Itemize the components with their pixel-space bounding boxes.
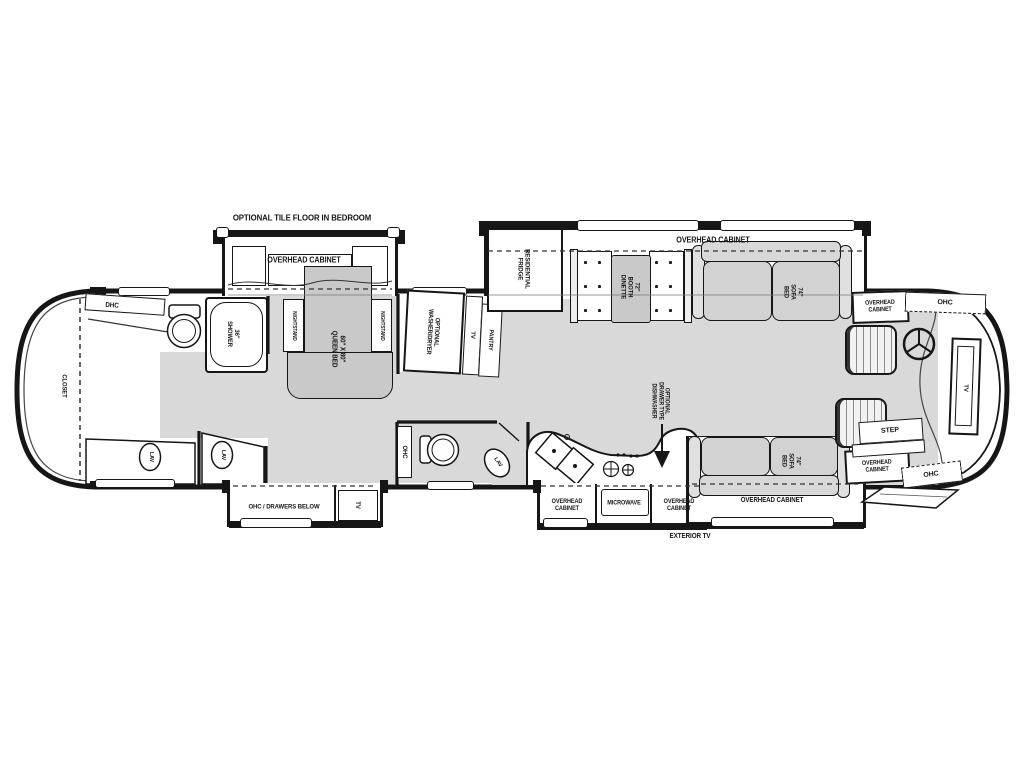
bedroom-slide-edge (222, 230, 398, 237)
kitchen-cabinet-right-label: OVERHEAD CABINET (664, 498, 695, 512)
fridge-label: RESIDENTIAL FRIDGE (516, 249, 531, 289)
dinette-bench-left (577, 251, 612, 321)
vanity-lav-label: LAV (219, 450, 225, 460)
window-rear-top (118, 287, 170, 296)
window-dinette-slide (577, 220, 699, 231)
front-top-cabinet-label: OVERHEAD CABINET (865, 300, 895, 315)
bedroom-slide-nub-right (387, 227, 400, 238)
window-sofa-slide-bottom (711, 517, 834, 527)
front-bottom-cabinet-label: OVERHEAD CABINET (862, 459, 892, 474)
rear-dhc-label: DHC (105, 302, 119, 310)
pantry-label: PANTRY (486, 329, 494, 350)
microwave-label: MICROWAVE (607, 499, 641, 506)
bedroom-slide-divider (334, 485, 336, 527)
slide-corner-post-7 (533, 480, 541, 493)
front-tv-label: TV (962, 384, 969, 392)
kitchen-cabinet-left-label: OVERHEAD CABINET (552, 498, 583, 512)
sofa-bottom-label: 74" SOFA BED (780, 453, 801, 469)
plan-title: OPTIONAL TILE FLOOR IN BEDROOM (233, 215, 371, 224)
cooktop-knob-2 (622, 453, 625, 456)
slide-corner-post-5 (222, 480, 230, 493)
queen-bed-label: 60" X 80" QUEEN BED (330, 331, 345, 368)
sink-drain-2 (573, 464, 577, 468)
midbath-ohc-label: OHC (401, 445, 407, 458)
front-top-ohc-label: OHC (937, 299, 953, 307)
bedroom-slide-cabinet-label: OVERHEAD CABINET (267, 257, 340, 266)
dishwasher-label: OPTIONAL DRAWER TYPE DISHWASHER (650, 382, 669, 420)
cooktop-knob-1 (616, 453, 619, 456)
sofa-top-label: 74" SOFA BED (782, 284, 803, 300)
sofa-bottom-back (699, 475, 839, 496)
bedroom-slide-nub-left (216, 227, 229, 238)
step-label: STEP (881, 427, 899, 436)
window-bath-bottom (95, 479, 175, 488)
exterior-tv-label: EXTERIOR TV (669, 533, 710, 541)
driver-seat (845, 325, 897, 375)
window-kitchen-slide (543, 518, 588, 528)
cooktop-knob-3 (629, 454, 632, 457)
ohc-drawers-label: OHC / DRAWERS BELOW (248, 503, 319, 510)
bath-lav-label: LAV (147, 452, 153, 462)
sofa-bottom-seat-left (701, 437, 770, 476)
floorplan-base-layer (0, 0, 1024, 768)
window-bedroom-slide-bottom (240, 518, 312, 528)
window-sofa-slide-top (720, 220, 855, 231)
rv-floorplan: OPTIONAL TILE FLOOR IN BEDROOM OVERHEAD … (0, 0, 1024, 768)
shower-label: 36" SHOWER (226, 321, 240, 347)
sofa-top-seat-left (703, 261, 772, 321)
washer-dryer-label: OPTIONAL WASHER/DRYER (425, 309, 441, 355)
kitchen-slide-divider-2 (650, 484, 652, 530)
kitchen-slide-divider-1 (595, 484, 597, 530)
hall-tv-label: TV (469, 331, 476, 339)
main-slide-edge-2 (698, 221, 722, 230)
dinette-back-right (684, 249, 692, 323)
dinette-label: 72" BOOTH DINETTE (619, 275, 640, 299)
slide-corner-post-6 (380, 480, 388, 493)
bedroom-cabinet-left (232, 246, 266, 286)
nightstand-right-label: NIGHTSTAND (378, 311, 384, 340)
cooktop-knob-4 (635, 454, 638, 457)
sofa-slide-cabinet-label: OVERHEAD CABINET (741, 497, 804, 505)
window-midbath-bottom (427, 481, 474, 490)
bedroom-tv-label: TV (354, 501, 360, 508)
sink-drain-1 (552, 449, 556, 453)
slide-corner-post-4 (862, 221, 871, 236)
nightstand-left-label: NIGHTSTAND (290, 311, 296, 340)
closet-label: CLOSET (60, 374, 67, 397)
main-slide-cabinet-label: OVERHEAD CABINET (676, 237, 749, 246)
